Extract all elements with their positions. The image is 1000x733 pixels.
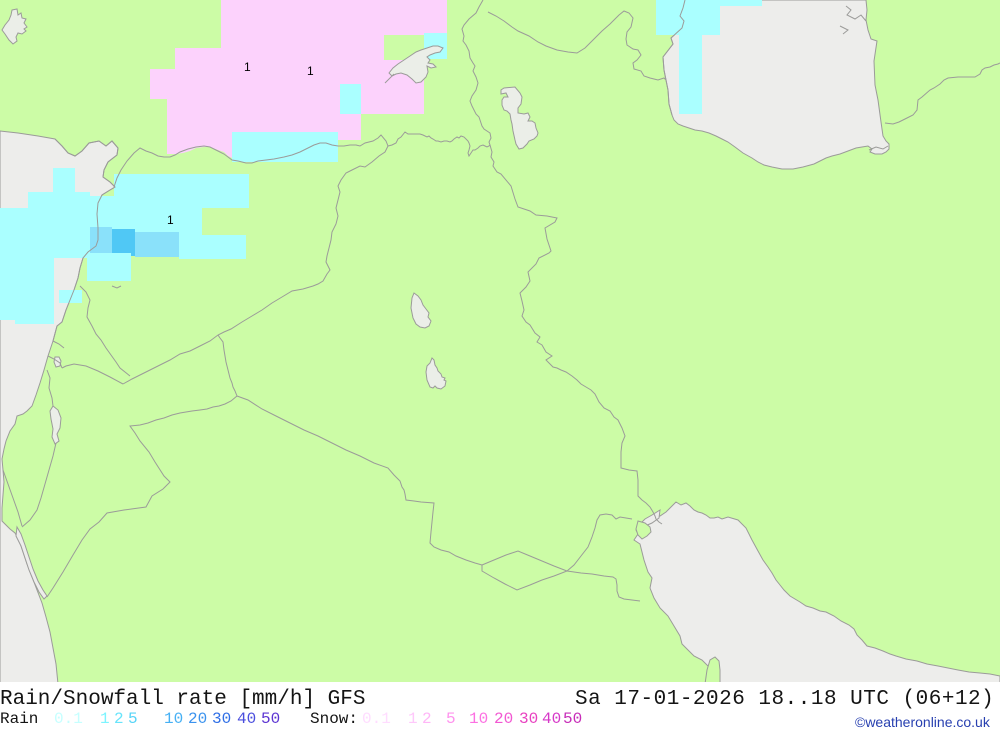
svg-text:0.1: 0.1 bbox=[54, 710, 83, 728]
svg-text:30: 30 bbox=[519, 710, 538, 728]
svg-text:Snow:: Snow: bbox=[310, 710, 358, 728]
svg-text:1: 1 bbox=[408, 710, 418, 728]
svg-text:1: 1 bbox=[244, 60, 251, 74]
svg-text:20: 20 bbox=[494, 710, 513, 728]
svg-text:40: 40 bbox=[237, 710, 256, 728]
svg-text:50: 50 bbox=[261, 710, 280, 728]
svg-text:1: 1 bbox=[307, 64, 314, 78]
svg-text:2: 2 bbox=[422, 710, 432, 728]
svg-text:1: 1 bbox=[167, 213, 174, 227]
svg-text:Rain: Rain bbox=[0, 710, 38, 728]
svg-text:Rain/Snowfall rate [mm/h] GFS: Rain/Snowfall rate [mm/h] GFS bbox=[0, 688, 365, 711]
svg-text:50: 50 bbox=[563, 710, 582, 728]
svg-text:30: 30 bbox=[212, 710, 231, 728]
svg-text:1: 1 bbox=[100, 710, 110, 728]
svg-text:10: 10 bbox=[164, 710, 183, 728]
svg-text:40: 40 bbox=[542, 710, 561, 728]
svg-text:5: 5 bbox=[128, 710, 138, 728]
svg-text:2: 2 bbox=[114, 710, 124, 728]
svg-text:0.1: 0.1 bbox=[362, 710, 391, 728]
svg-text:Sa 17-01-2026 18..18 UTC (06+1: Sa 17-01-2026 18..18 UTC (06+12) bbox=[575, 688, 994, 711]
svg-text:10: 10 bbox=[469, 710, 488, 728]
svg-text:©weatheronline.co.uk: ©weatheronline.co.uk bbox=[855, 714, 991, 730]
svg-text:5: 5 bbox=[446, 710, 456, 728]
svg-text:20: 20 bbox=[188, 710, 207, 728]
